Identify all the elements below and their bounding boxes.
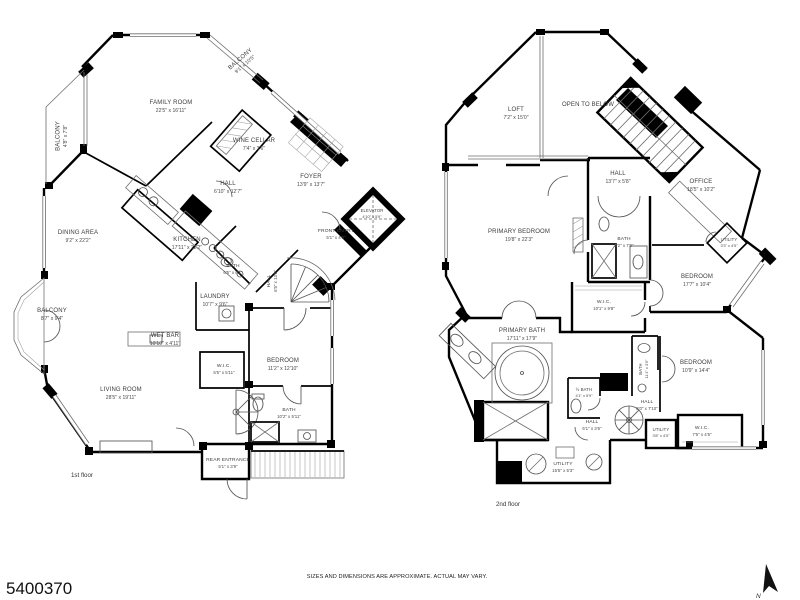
svg-text:FRONT ENTRY: FRONT ENTRY	[318, 228, 355, 234]
svg-text:LOFT: LOFT	[508, 107, 524, 113]
svg-text:4'1" x 5'9": 4'1" x 5'9"	[575, 393, 593, 398]
svg-text:BEDROOM: BEDROOM	[681, 274, 713, 280]
floor1-label: 1st floor	[71, 472, 93, 479]
svg-text:10'9" x 14'4": 10'9" x 14'4"	[682, 368, 710, 374]
svg-text:UTILITY: UTILITY	[653, 427, 670, 432]
svg-text:WET BAR: WET BAR	[151, 333, 180, 339]
svg-text:DINING AREA: DINING AREA	[58, 230, 98, 236]
disclaimer-text: SIZES AND DIMENSIONS ARE APPROXIMATE. AC…	[307, 574, 488, 580]
svg-text:6'1" x 3'6": 6'1" x 3'6"	[582, 426, 602, 431]
svg-text:3'8" x 4'5": 3'8" x 4'5"	[652, 433, 670, 438]
svg-text:8'0" x 7'10": 8'0" x 7'10"	[636, 406, 658, 411]
svg-text:10'7" x 9'6": 10'7" x 9'6"	[202, 302, 227, 308]
svg-text:5'1" x 3'9": 5'1" x 3'9"	[218, 464, 238, 469]
svg-text:6'5" x 6'1": 6'5" x 6'1"	[223, 270, 243, 275]
svg-text:4'8" x 7'8": 4'8" x 7'8"	[63, 125, 69, 147]
svg-text:10'10" x 4'11": 10'10" x 4'11"	[150, 341, 181, 347]
svg-text:BATH: BATH	[226, 263, 240, 269]
svg-text:WINE CELLAR: WINE CELLAR	[233, 138, 276, 144]
svg-text:6'10" x 12'7": 6'10" x 12'7"	[214, 189, 242, 195]
svg-text:HALL: HALL	[220, 181, 236, 187]
svg-text:KITCHEN: KITCHEN	[173, 237, 200, 243]
page-background	[0, 0, 800, 600]
svg-text:13'9" x 13'7": 13'9" x 13'7"	[297, 182, 325, 188]
svg-text:ELEVATOR: ELEVATOR	[361, 208, 384, 213]
svg-text:OFFICE: OFFICE	[690, 179, 713, 185]
svg-text:BATH: BATH	[282, 407, 296, 413]
svg-text:REAR ENTRANCE: REAR ENTRANCE	[206, 457, 250, 463]
svg-text:10'2" x 5'11": 10'2" x 5'11"	[277, 414, 301, 419]
svg-text:UTILITY: UTILITY	[553, 461, 573, 467]
svg-text:PRIMARY BEDROOM: PRIMARY BEDROOM	[488, 229, 550, 235]
svg-text:W.I.C.: W.I.C.	[217, 363, 231, 369]
room-label-open-to-below: OPEN TO BELOW	[562, 102, 614, 108]
svg-text:BALCONY: BALCONY	[37, 308, 67, 314]
compass-label: N	[756, 593, 761, 600]
room-label-balcony-upperleft: BALCONY 4'8" x 7'8"	[56, 121, 70, 151]
mls-number: 5400370	[6, 579, 72, 598]
svg-text:BEDROOM: BEDROOM	[267, 358, 299, 364]
svg-text:HALL: HALL	[610, 171, 626, 177]
svg-text:PRIMARY BATH: PRIMARY BATH	[499, 328, 545, 334]
svg-text:17'7" x 10'4": 17'7" x 10'4"	[683, 282, 711, 288]
floor2-label: 2nd floor	[496, 501, 520, 508]
svg-text:19'8" x 22'3": 19'8" x 22'3"	[505, 237, 533, 243]
svg-text:BATH: BATH	[617, 236, 631, 242]
svg-text:7'2" x 15'0": 7'2" x 15'0"	[503, 115, 528, 121]
svg-text:8'2" x 7'9": 8'2" x 7'9"	[614, 243, 634, 248]
svg-text:FOYER: FOYER	[300, 174, 322, 180]
svg-text:HALL: HALL	[266, 274, 272, 287]
svg-text:9'2" x 22'2": 9'2" x 22'2"	[65, 238, 90, 244]
svg-text:10'1" x 9'8": 10'1" x 9'8"	[593, 306, 615, 311]
svg-text:OPEN TO BELOW: OPEN TO BELOW	[562, 102, 614, 108]
svg-text:7'4" x 3'6": 7'4" x 3'6"	[243, 146, 265, 152]
svg-text:3'3" x 4'5": 3'3" x 4'5"	[720, 243, 738, 248]
svg-text:BATH: BATH	[638, 363, 643, 374]
svg-text:5'5" x 5'11": 5'5" x 5'11"	[213, 370, 235, 375]
svg-text:W.I.C.: W.I.C.	[597, 299, 611, 305]
svg-text:6'5" x 13'0": 6'5" x 13'0"	[273, 270, 278, 292]
floorplan-canvas: FAMILY ROOM 22'5" x 16'11" BALCONY 9'1" …	[0, 0, 800, 600]
room-label-elevator: ELEVATOR 4'10" x 5'9"	[361, 208, 384, 219]
svg-text:UTILITY: UTILITY	[721, 237, 738, 242]
svg-text:28'5" x 19'11": 28'5" x 19'11"	[106, 395, 137, 401]
svg-text:22'5" x 16'11": 22'5" x 16'11"	[156, 108, 187, 114]
floorplan-page: FAMILY ROOM 22'5" x 16'11" BALCONY 9'1" …	[0, 0, 800, 600]
room-label-utility2: UTILITY 3'8" x 4'5"	[652, 427, 670, 438]
svg-text:8'7" x 9'4": 8'7" x 9'4"	[41, 316, 63, 322]
svg-text:HALL: HALL	[586, 419, 599, 425]
svg-text:½ BATH: ½ BATH	[576, 387, 592, 392]
svg-text:BEDROOM: BEDROOM	[680, 360, 712, 366]
room-label-half-bath: ½ BATH 4'1" x 5'9"	[575, 387, 593, 398]
svg-text:18'5" x 10'2": 18'5" x 10'2"	[687, 187, 715, 193]
svg-text:LIVING ROOM: LIVING ROOM	[100, 387, 142, 393]
svg-text:7'5" x 4'5": 7'5" x 4'5"	[692, 432, 712, 437]
svg-text:13'7" x 5'8": 13'7" x 5'8"	[605, 179, 630, 185]
svg-text:5'1" x 4'0": 5'1" x 4'0"	[326, 235, 346, 240]
svg-text:LAUNDRY: LAUNDRY	[200, 294, 230, 300]
svg-text:HALL: HALL	[641, 399, 654, 405]
svg-text:11'4" x 3'0": 11'4" x 3'0"	[644, 359, 649, 379]
room-label-utility1: UTILITY 3'3" x 4'5"	[720, 237, 738, 248]
svg-text:15'5" x 5'3": 15'5" x 5'3"	[552, 468, 574, 473]
svg-text:17'11" x 17'9": 17'11" x 17'9"	[507, 336, 538, 342]
svg-text:W.I.C.: W.I.C.	[695, 425, 709, 431]
svg-text:FAMILY ROOM: FAMILY ROOM	[150, 100, 193, 106]
svg-text:BALCONY: BALCONY	[56, 121, 62, 151]
svg-text:4'10" x 5'9": 4'10" x 5'9"	[362, 214, 382, 219]
svg-text:17'11" x 22'2": 17'11" x 22'2"	[172, 245, 203, 251]
svg-text:11'2" x 12'10": 11'2" x 12'10"	[268, 366, 299, 372]
